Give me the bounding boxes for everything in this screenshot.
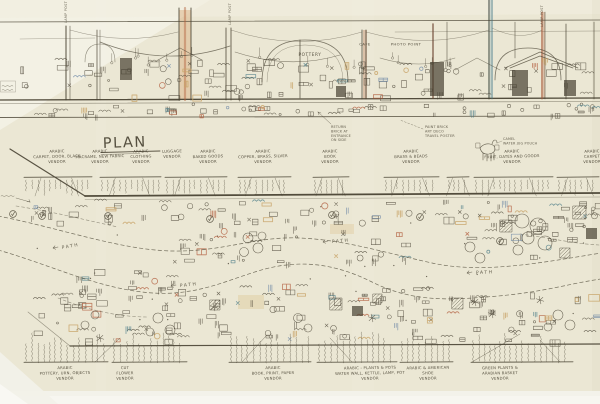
finish-note-line: PAINT BRICK [425,125,449,129]
vendor-label-line: VENDOR [91,159,109,164]
vendor-label-line: VENDOR [264,375,282,380]
label-underline [317,362,397,363]
camel-note-line: WATER JUG POUCH [503,142,538,146]
label-underline [447,177,469,178]
label-underline [384,177,439,178]
label-underline [557,177,599,178]
finish-note-line: ART DECO [425,129,444,133]
camel-note-line: CAMEL [503,137,515,141]
paper-bottom-strip [0,396,600,404]
vendor-label-line: VENDOR [48,159,66,164]
label-underline [313,177,349,178]
photo-point-label: PHOTO POINT [391,42,422,47]
vendor-label-line: VENDOR [419,375,437,380]
label-underline [165,177,227,178]
scanned-plan-sketch: PLANPOTTERYCAFEPHOTO POINTLAMP POSTLAMP … [0,0,600,404]
vendor-label-line: VENDOR [361,375,379,380]
label-underline [24,177,92,178]
vendor-label-line: VENDOR [503,159,521,164]
label-underline [229,362,311,363]
vendor-label-line: VENDOR [163,153,181,158]
lamp-post-label: LAMP POST [64,0,68,23]
lamp-post-label: LAMP POST [540,4,544,27]
path-label: PATH [476,269,494,276]
market-plan-drawing: PLANPOTTERYCAFEPHOTO POINTLAMP POSTLAMP … [0,0,600,404]
vendor-label-line: VENDOR [254,159,272,164]
entrance-note-line: RETURN [331,125,346,129]
vendor-label-line: VENDOR [583,159,600,164]
entrance-note-line: ON SIDE [331,138,347,142]
label-underline [112,362,187,363]
label-underline [238,177,291,178]
vendor-label-line: VENDOR [199,159,217,164]
cafe-label: CAFE [359,42,371,47]
lamp-post-label: LAMP POST [228,2,232,25]
pottery-label: POTTERY [299,52,322,57]
label-underline [474,177,553,178]
paper-right-edge [592,0,600,404]
vendor-label-line: VENDOR [321,159,339,164]
vendor-label-line: VENDOR [56,375,74,380]
entrance-note-line: BRICK AT [331,129,349,133]
label-underline [400,362,453,363]
vendor-label-line: VENDOR [132,159,150,164]
label-underline [100,177,161,178]
vendor-label-line: VENDOR [116,375,134,380]
vendor-label-line: VENDOR [491,375,509,380]
finish-note-line: TRAVEL POSTER [424,134,455,138]
entrance-note-line: ENTRANCE [331,134,351,138]
vendor-label-line: VENDOR [402,159,420,164]
